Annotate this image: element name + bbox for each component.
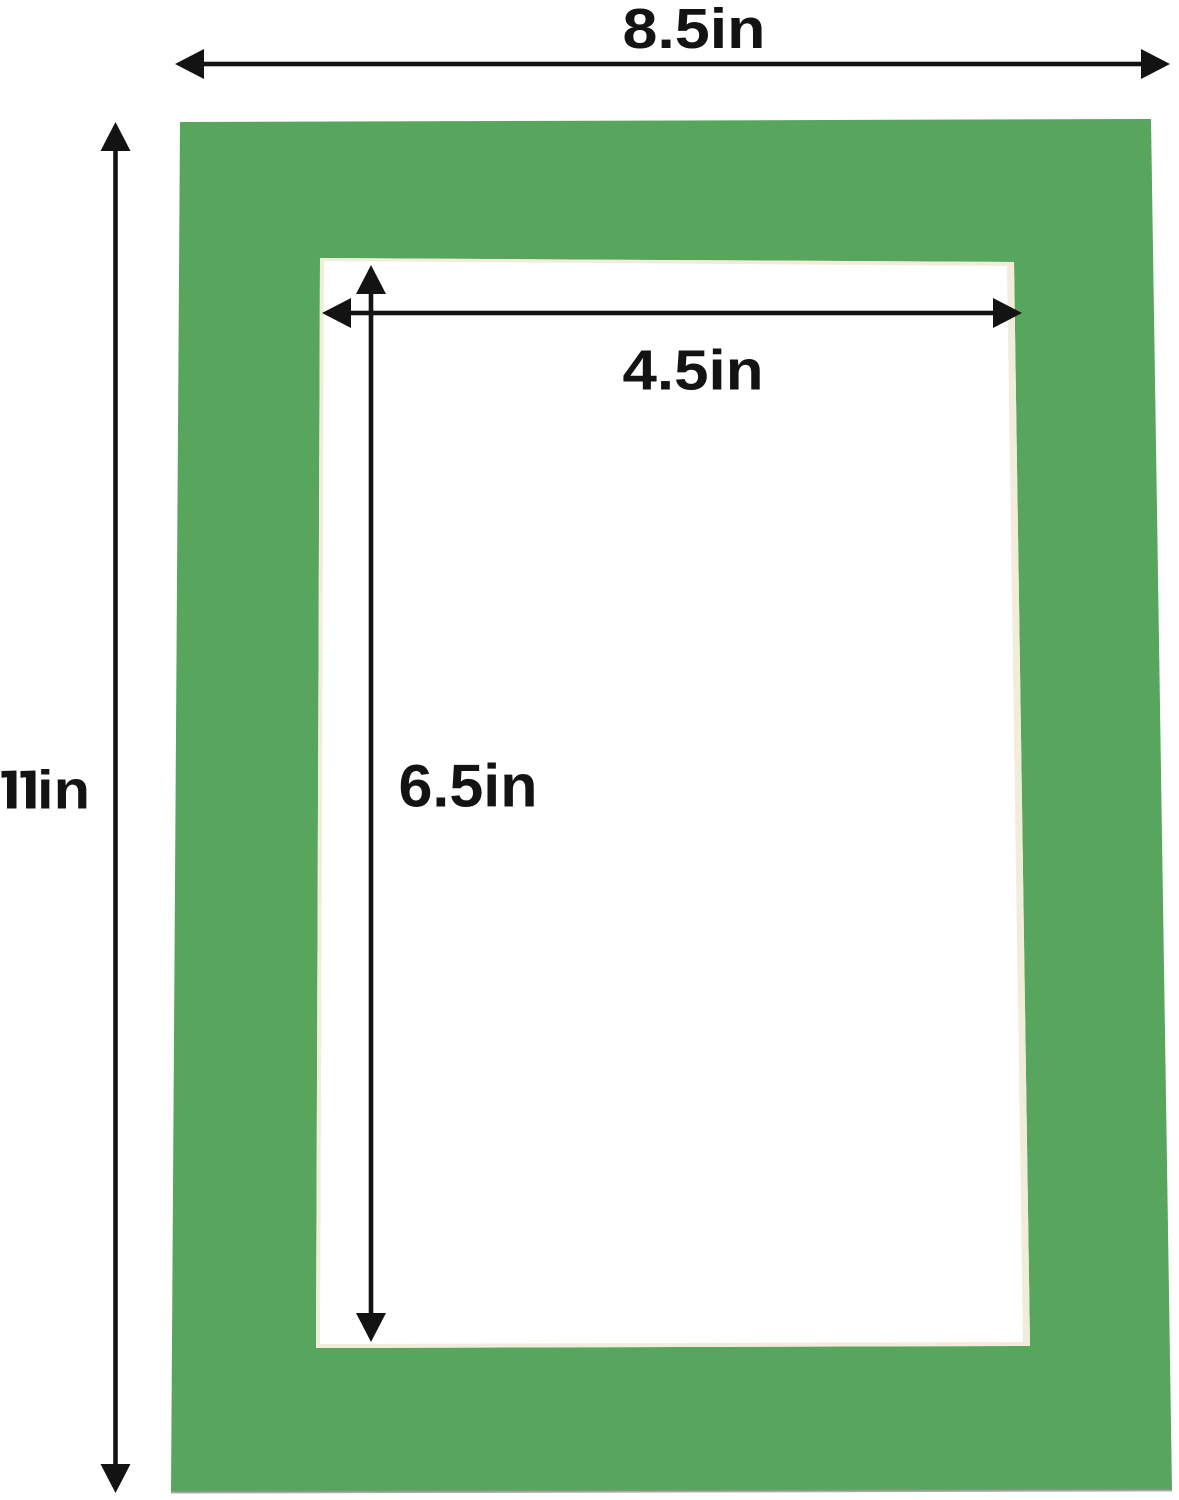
svg-text:8.5in: 8.5in — [623, 0, 766, 61]
svg-text:6.5in: 6.5in — [399, 753, 538, 820]
svg-text:4.5in: 4.5in — [623, 339, 764, 403]
svg-text:in: in — [37, 759, 90, 821]
